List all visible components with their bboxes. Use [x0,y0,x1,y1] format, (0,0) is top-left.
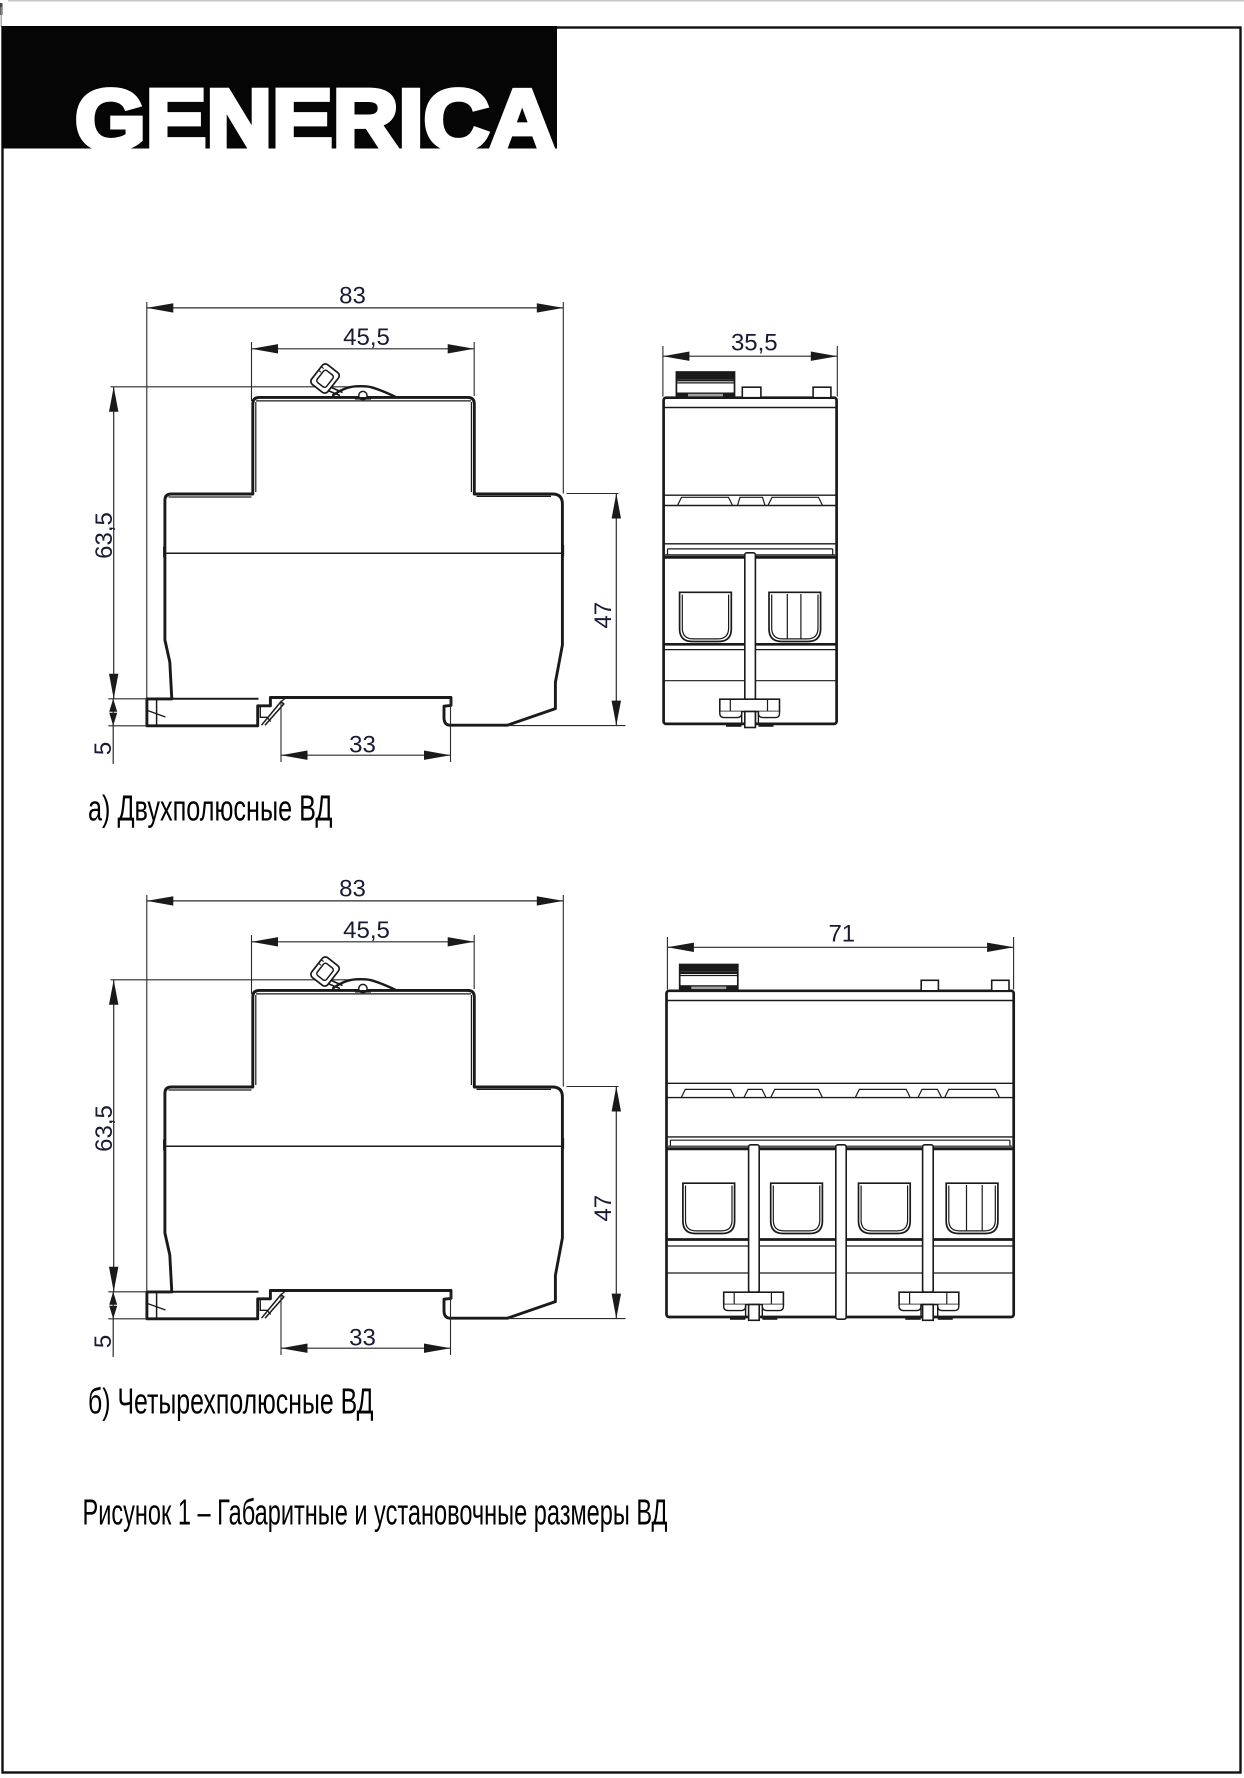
svg-text:33: 33 [349,1325,376,1352]
svg-text:5: 5 [90,1335,117,1348]
svg-text:63,5: 63,5 [91,512,118,559]
svg-text:а) Двухполюсные ВД: а) Двухполюсные ВД [88,788,333,829]
svg-text:б) Четырехполюсные ВД: б) Четырехполюсные ВД [88,1380,374,1421]
svg-text:Рисунок 1 – Габаритные и устан: Рисунок 1 – Габаритные и установочные ра… [83,1492,668,1533]
svg-text:45,5: 45,5 [343,917,390,944]
svg-text:63,5: 63,5 [91,1105,118,1152]
svg-text:71: 71 [828,921,855,948]
svg-text:33: 33 [349,732,376,759]
svg-text:35,5: 35,5 [731,329,778,356]
svg-text:GENERICA: GENERICA [75,73,555,168]
svg-text:83: 83 [339,875,366,902]
svg-text:45,5: 45,5 [343,324,390,351]
svg-text:47: 47 [590,602,617,629]
svg-text:83: 83 [339,282,366,309]
svg-text:47: 47 [590,1195,617,1222]
svg-text:5: 5 [90,742,117,755]
